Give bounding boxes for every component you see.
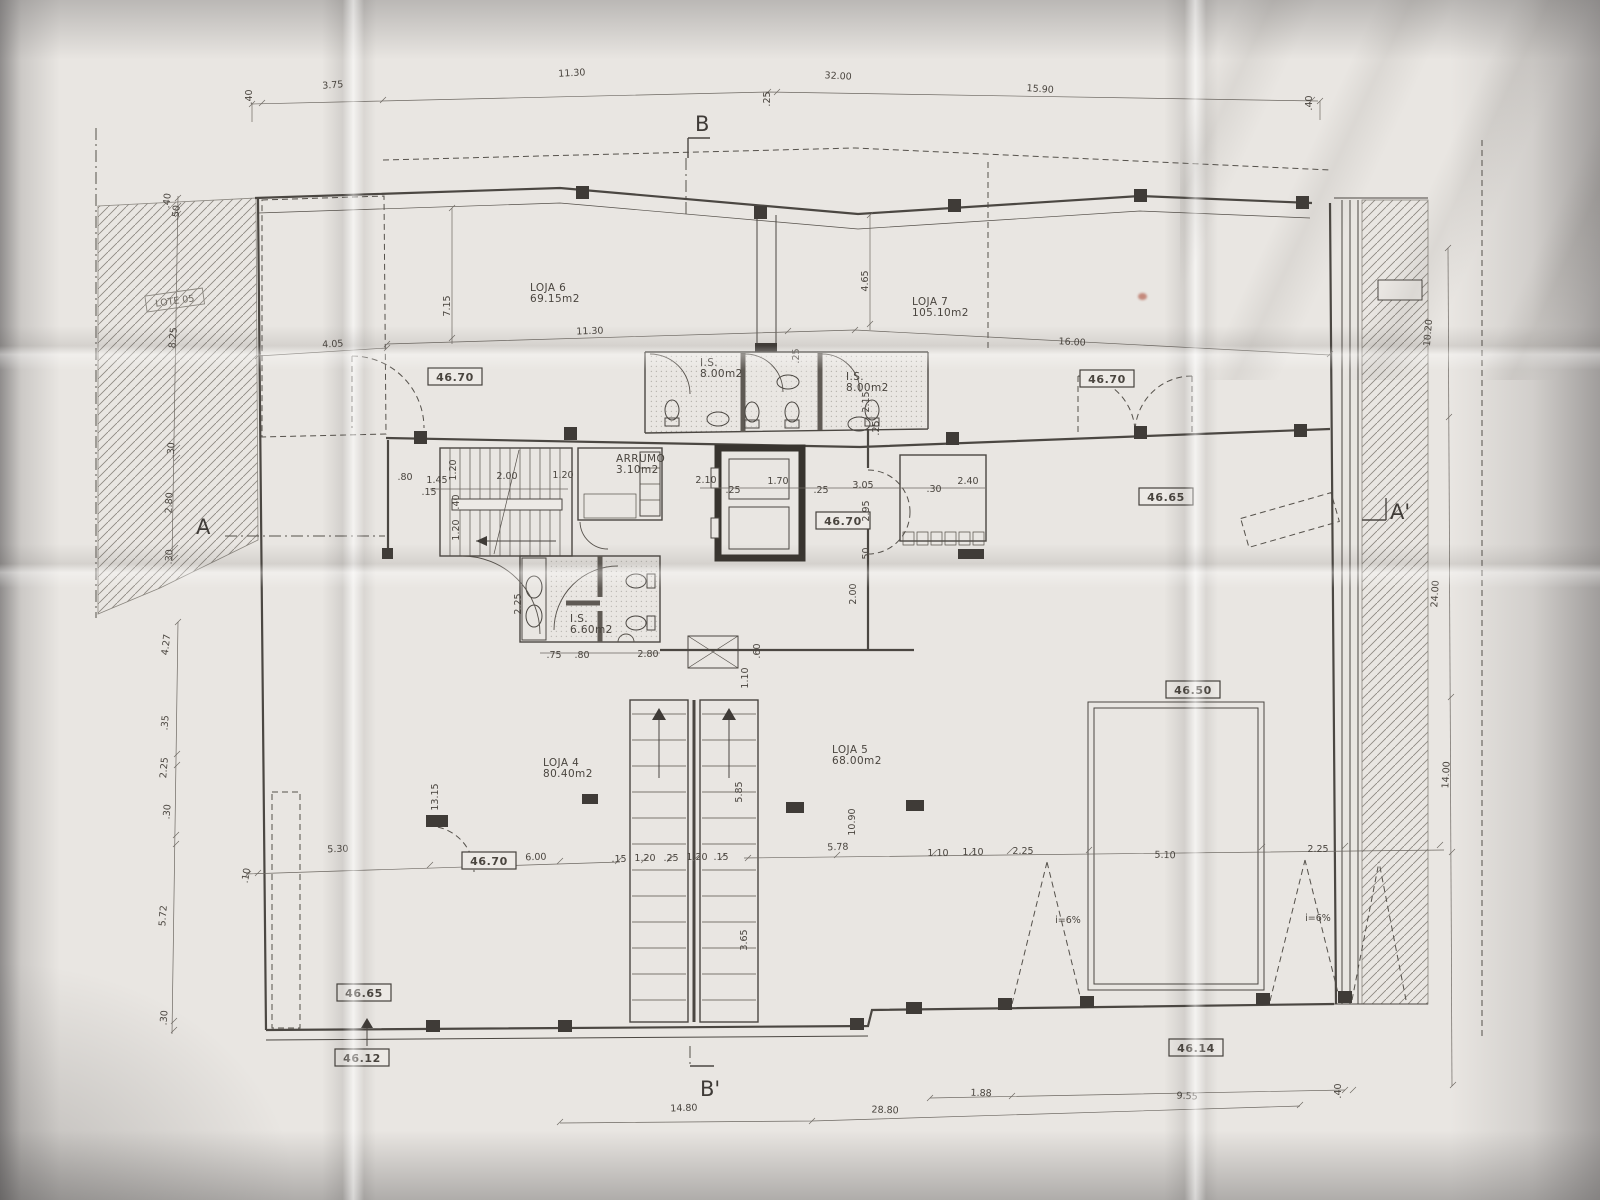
dim-label: 2.40 (957, 476, 978, 487)
neighbor-opening (1378, 280, 1422, 300)
dim-label: .80 (574, 650, 589, 661)
dim-label: 1.10 (927, 848, 948, 859)
room-area-label: 3.10m2 (616, 464, 659, 476)
dim-label: 2.80 (637, 649, 658, 660)
dim-label: .25 (813, 485, 828, 496)
dim-label: .25 (725, 485, 740, 496)
dim-label: 13.15 (430, 783, 441, 810)
dim-label: 2.15 (861, 391, 872, 412)
elevator-core (711, 448, 802, 558)
dim-label: 6.00 (525, 852, 547, 864)
dim-label: .25 (762, 91, 773, 106)
dim-label: .10 (240, 867, 253, 884)
dim-label: 2.95 (861, 500, 872, 521)
dim-label: 15.90 (1026, 83, 1054, 96)
dim-label: .40 (451, 494, 462, 509)
dim-label: .50 (170, 205, 183, 221)
dim-label: 3.05 (852, 480, 873, 491)
dim-label: 5.72 (157, 905, 169, 927)
room-area-label: 80.40m2 (543, 768, 593, 780)
section-marker-a: A (196, 515, 211, 539)
site-hatch-right (1362, 200, 1428, 1004)
level-badge: 46.70 (1088, 373, 1126, 386)
dim-label: 2.80 (163, 492, 175, 514)
dim-label: 2.25 (1012, 846, 1033, 857)
dim-label: 5.30 (327, 844, 349, 856)
dim-label: 5.85 (734, 781, 745, 802)
dim-label: 3.75 (322, 79, 344, 91)
service-shaft (688, 636, 738, 668)
dim-label: i=6% (1305, 913, 1331, 924)
dim-label: .35 (159, 715, 171, 731)
dim-label: .40 (244, 89, 255, 104)
level-badge: 46.12 (343, 1052, 381, 1065)
dim-label: .30 (158, 1010, 170, 1026)
dim-label: 7.15 (442, 295, 453, 316)
level-badge: 46.50 (1174, 684, 1212, 697)
dim-label: .15 (611, 854, 626, 865)
dim-label: 4.65 (860, 270, 871, 291)
dim-label: .40 (1333, 1083, 1344, 1098)
dimension-lines (171, 89, 1456, 1125)
dim-label: 1.20 (451, 519, 462, 540)
room-area-label: 105.10m2 (912, 307, 969, 319)
dim-label: 3.65 (739, 929, 750, 950)
dim-label: .60 (752, 643, 763, 658)
dim-label: 28.80 (871, 1105, 899, 1117)
dim-label: .30 (926, 484, 941, 495)
site-hatch-left (98, 198, 258, 614)
dim-label: .25 (791, 348, 802, 363)
hatch-layer (98, 198, 1428, 1004)
dim-label: .30 (166, 442, 178, 458)
dim-label: 24.00 (1429, 580, 1441, 608)
dim-label: 2.25 (1307, 844, 1328, 855)
dim-label: 1.45 (426, 475, 447, 486)
dim-label: i=6% (1055, 915, 1081, 926)
sink-icon (526, 576, 542, 598)
level-badges: 46.7046.7046.6546.7046.7046.5046.6546.12… (335, 368, 1223, 1066)
dim-label: .40 (1304, 95, 1315, 110)
dim-label: .15 (421, 487, 436, 498)
room-area-label: 6.60m2 (570, 624, 613, 636)
room-area-label: 8.00m2 (700, 368, 743, 380)
level-badge: 46.70 (470, 855, 508, 868)
dim-label: .15 (713, 852, 728, 863)
walls-layer (255, 188, 1336, 1040)
dim-label: 1.10 (740, 667, 751, 688)
section-marker-b: B (695, 112, 709, 136)
dim-label: 2.25 (158, 757, 171, 779)
dim-label: 10.20 (1422, 319, 1435, 347)
dim-label: 1.10 (962, 847, 983, 858)
dim-label: 32.00 (824, 70, 852, 82)
dim-label: .30 (164, 549, 176, 565)
dim-label: 4.27 (160, 634, 173, 656)
dim-label: 1.20 (634, 853, 655, 864)
dim-label: 14.80 (670, 1103, 698, 1115)
level-badge: 46.14 (1177, 1042, 1215, 1055)
planter-dashed (1241, 493, 1340, 548)
dim-label: .50 (861, 547, 872, 562)
section-marker-a-prime: A' (1390, 500, 1410, 524)
floor-plan-svg: B B' A A' LOTE 05 LOJA 669.15m2LOJA 7105… (0, 0, 1600, 1200)
right-room (900, 455, 986, 559)
dim-label: 4.05 (322, 338, 344, 350)
dim-label: 16.00 (1058, 336, 1086, 348)
dim-label: 10.90 (847, 808, 858, 835)
dim-label: 9.55 (1176, 1090, 1198, 1102)
door-arcs (352, 356, 1192, 872)
dim-label: 11.30 (576, 326, 604, 338)
dim-label: 5.78 (827, 842, 849, 854)
dim-label: 1.20 (552, 470, 573, 481)
dim-label: 2.10 (695, 475, 716, 486)
dim-label: 5.10 (1154, 850, 1176, 862)
dim-label: 1.70 (767, 476, 788, 487)
dim-label: 8.25 (167, 327, 180, 349)
section-markers: B B' A A' (196, 112, 1410, 1101)
dim-label: 2.00 (848, 583, 859, 604)
dim-label: 14.00 (1440, 761, 1452, 789)
dim-label: 11.30 (558, 67, 586, 79)
dim-label: .80 (397, 472, 412, 483)
level-badge: 46.65 (345, 987, 383, 1000)
dim-label: .75 (546, 650, 561, 661)
section-marker-b-prime: B' (700, 1077, 720, 1101)
level-badge: 46.70 (436, 371, 474, 384)
level-badge: 46.70 (824, 515, 862, 528)
dim-label: .30 (161, 804, 173, 820)
level-badge: 46.65 (1147, 491, 1185, 504)
photographed-floor-plan: B B' A A' LOTE 05 LOJA 669.15m2LOJA 7105… (0, 0, 1600, 1200)
dim-label: .25 (663, 853, 678, 864)
level-arrow (361, 1018, 373, 1046)
dim-label: .25 (871, 420, 882, 435)
dim-label: 1.20 (686, 852, 707, 863)
room-area-label: 68.00m2 (832, 755, 882, 767)
dim-label: 1.88 (970, 1088, 992, 1100)
boundary-layer (96, 128, 1482, 1066)
dim-label: 2.00 (496, 471, 517, 482)
dim-label: 2.25 (513, 593, 524, 614)
dim-label: 1.20 (448, 459, 459, 480)
room-area-label: 69.15m2 (530, 293, 580, 305)
